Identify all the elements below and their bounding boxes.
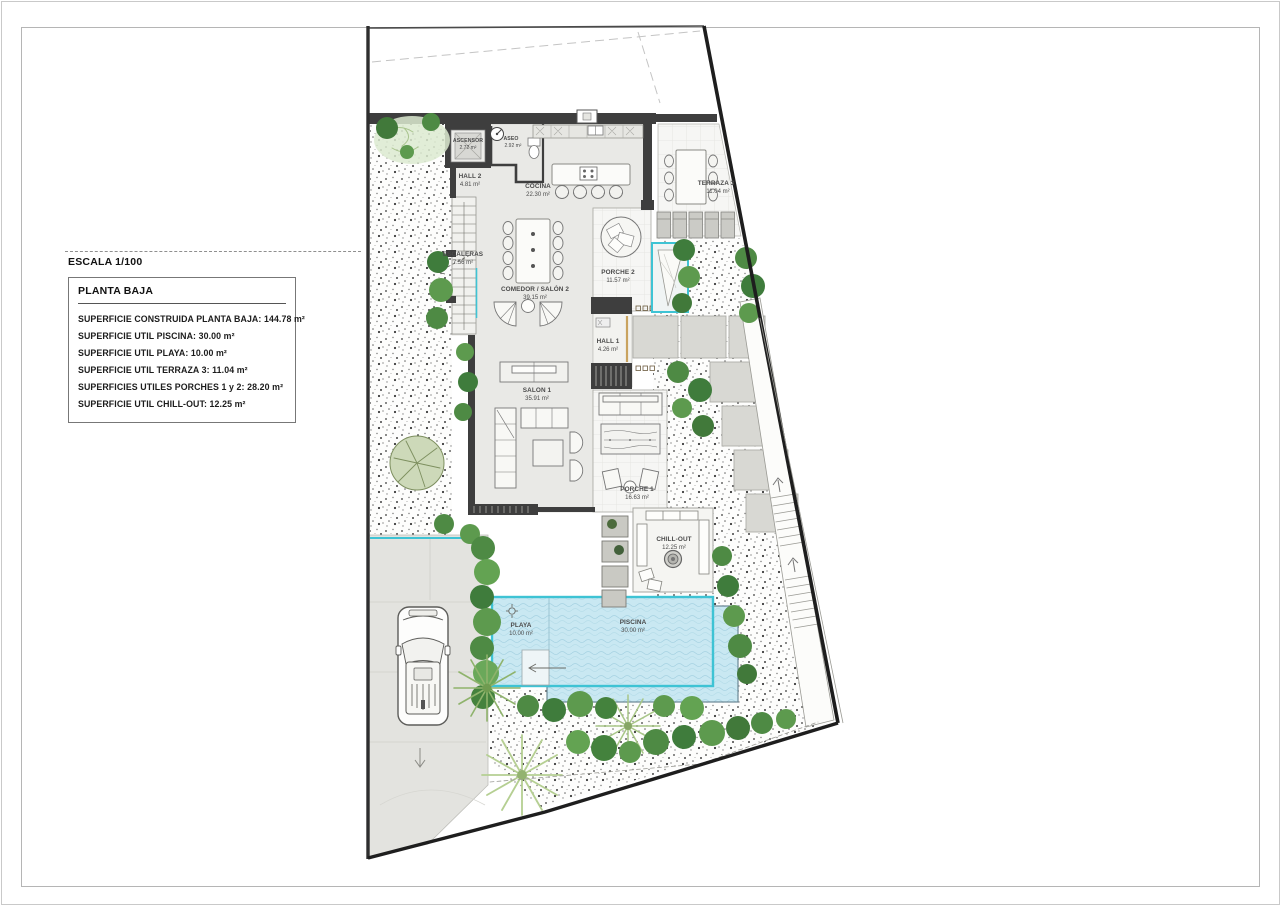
room-label: PORCHE 2 <box>601 269 635 276</box>
street-area <box>372 31 700 103</box>
room-label: PLAYA <box>511 622 532 629</box>
car <box>396 607 450 725</box>
room-area: 11.04 m² <box>706 189 729 195</box>
room-area: 2.72 m² <box>460 145 477 151</box>
room-area: 12.25 m² <box>662 545 686 551</box>
room-area: 4.26 m² <box>598 347 618 353</box>
room-area: 2.92 m² <box>505 143 522 149</box>
extractor-fan-icon <box>491 128 504 141</box>
pool-steps <box>522 650 549 685</box>
pool <box>492 597 738 702</box>
room-label: PORCHE 1 <box>620 486 654 493</box>
room-label: ESCALERAS <box>443 251 484 258</box>
sun-loungers <box>657 212 735 238</box>
room-label: HALL 1 <box>597 338 620 345</box>
room-label: ASEO <box>503 136 518 142</box>
room-label: COMEDOR / SALÓN 2 <box>501 284 569 293</box>
room-area: 16.63 m² <box>625 495 649 501</box>
room-area: 11.57 m² <box>606 278 629 284</box>
room-area: 7.56 m² <box>453 260 473 266</box>
room-area: 35.91 m² <box>525 396 549 402</box>
room-area: 4.81 m² <box>460 182 480 188</box>
terraza3-table <box>665 150 718 204</box>
room-area: 22.30 m² <box>526 192 550 198</box>
room-label: SALON 1 <box>523 387 552 394</box>
floor-plan: ASCENSOR 2.72 m² ASEO 2.92 m² HALL 2 4.8… <box>0 0 1280 905</box>
porche2-daybed <box>601 217 641 257</box>
room-area: 30.00 m² <box>621 628 645 634</box>
large-tree <box>390 436 444 490</box>
cooktop <box>580 167 597 180</box>
room-label: PISCINA <box>620 619 647 626</box>
room-label: TERRAZA 3 <box>698 180 735 187</box>
room-area: 10.00 m² <box>509 631 533 637</box>
planter-squares <box>602 516 628 607</box>
room-area: 39.15 m² <box>523 295 547 301</box>
room-label: CHILL-OUT <box>656 536 691 543</box>
drawing-sheet: ESCALA 1/100 PLANTA BAJA SUPERFICIE CONS… <box>0 0 1280 905</box>
room-label: COCINA <box>525 183 551 190</box>
room-label: ASCENSOR <box>453 138 483 144</box>
room-label: HALL 2 <box>459 173 482 180</box>
